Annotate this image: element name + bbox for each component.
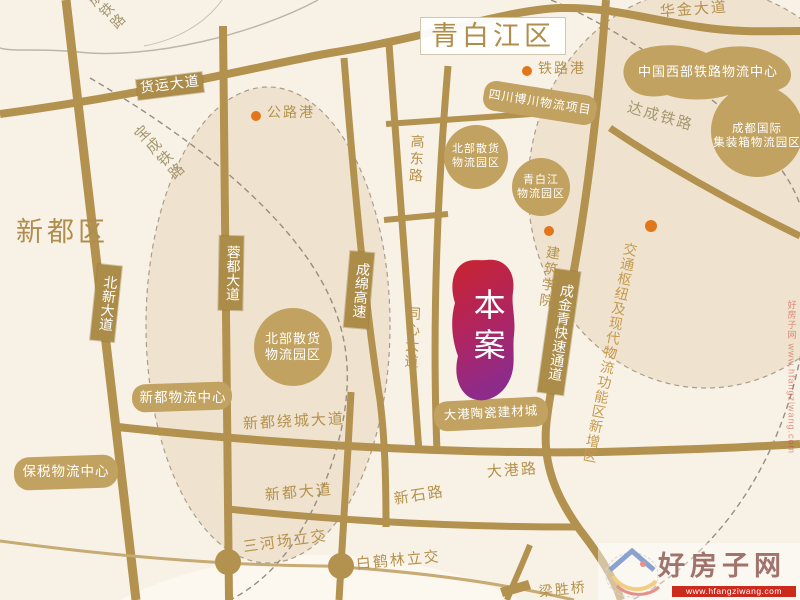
tielugang-dot — [522, 66, 532, 76]
zone-label-baoshui-center: 保税物流中心 — [20, 464, 112, 481]
district-label-xindu: 新都区 — [16, 218, 109, 246]
zone-label-beibu-small-line1: 北部散货 — [445, 143, 507, 157]
road-badge-rongdu: 蓉都大道 — [218, 236, 243, 310]
map-geometry — [0, 0, 800, 600]
zone-label-qbj-park-line2: 物流园区 — [511, 188, 571, 202]
district-label-qingbaijiang: 青白江区 — [420, 17, 566, 55]
zone-label-qbj-park-line1: 青白江 — [511, 174, 571, 188]
watermark-url: www.hfangziwang.com — [672, 586, 796, 597]
watermark-side-text: 好房子网 www.hfangziwang.com — [786, 300, 795, 435]
jianzhuxueyuan-dot — [544, 226, 554, 236]
zone-label-jizhuangxiang-line1: 成都国际 — [709, 122, 800, 136]
location-map: 青白江区 新都区 货运大道 北新大道 蓉都大道 成绵高速 成金青快速通道 华金大… — [0, 0, 800, 600]
poi-label-tielugang: 铁路港 — [538, 63, 586, 78]
sanhechang-interchange-node — [215, 549, 241, 575]
zone-label-jizhuangxiang-line2: 集装箱物流园区 — [709, 136, 800, 150]
zone-label-xindu-center: 新都物流中心 — [136, 390, 230, 407]
zone-label-beibu-big-line2: 物流园区 — [255, 347, 331, 363]
zone-label-beibu-big-line1: 北部散货 — [255, 331, 331, 347]
zone-label-beibu-small-line2: 物流园区 — [445, 157, 507, 171]
gonglugang-dot — [251, 111, 261, 121]
zone-label-beibu-small: 北部散货 物流园区 — [445, 143, 507, 171]
road-label-tongxin: 同心大道 — [401, 306, 419, 371]
zone-label-qbj-park: 青白江 物流园区 — [511, 174, 571, 202]
zone-label-xibu-center: 中国西部铁路物流中心 — [628, 64, 788, 80]
project-site-label: 本案 — [470, 288, 504, 368]
road-label-gaodong: 高东路 — [406, 134, 423, 186]
jiaotongshuniu-dot — [645, 220, 657, 232]
watermark-site-name: 好房子网 — [658, 552, 786, 580]
baihelin-interchange-node — [328, 553, 354, 579]
zone-label-jizhuangxiang: 成都国际 集装箱物流园区 — [709, 122, 800, 151]
zone-label-beibu-big: 北部散货 物流园区 — [255, 331, 331, 364]
poi-label-gonglugang: 公路港 — [267, 107, 315, 122]
